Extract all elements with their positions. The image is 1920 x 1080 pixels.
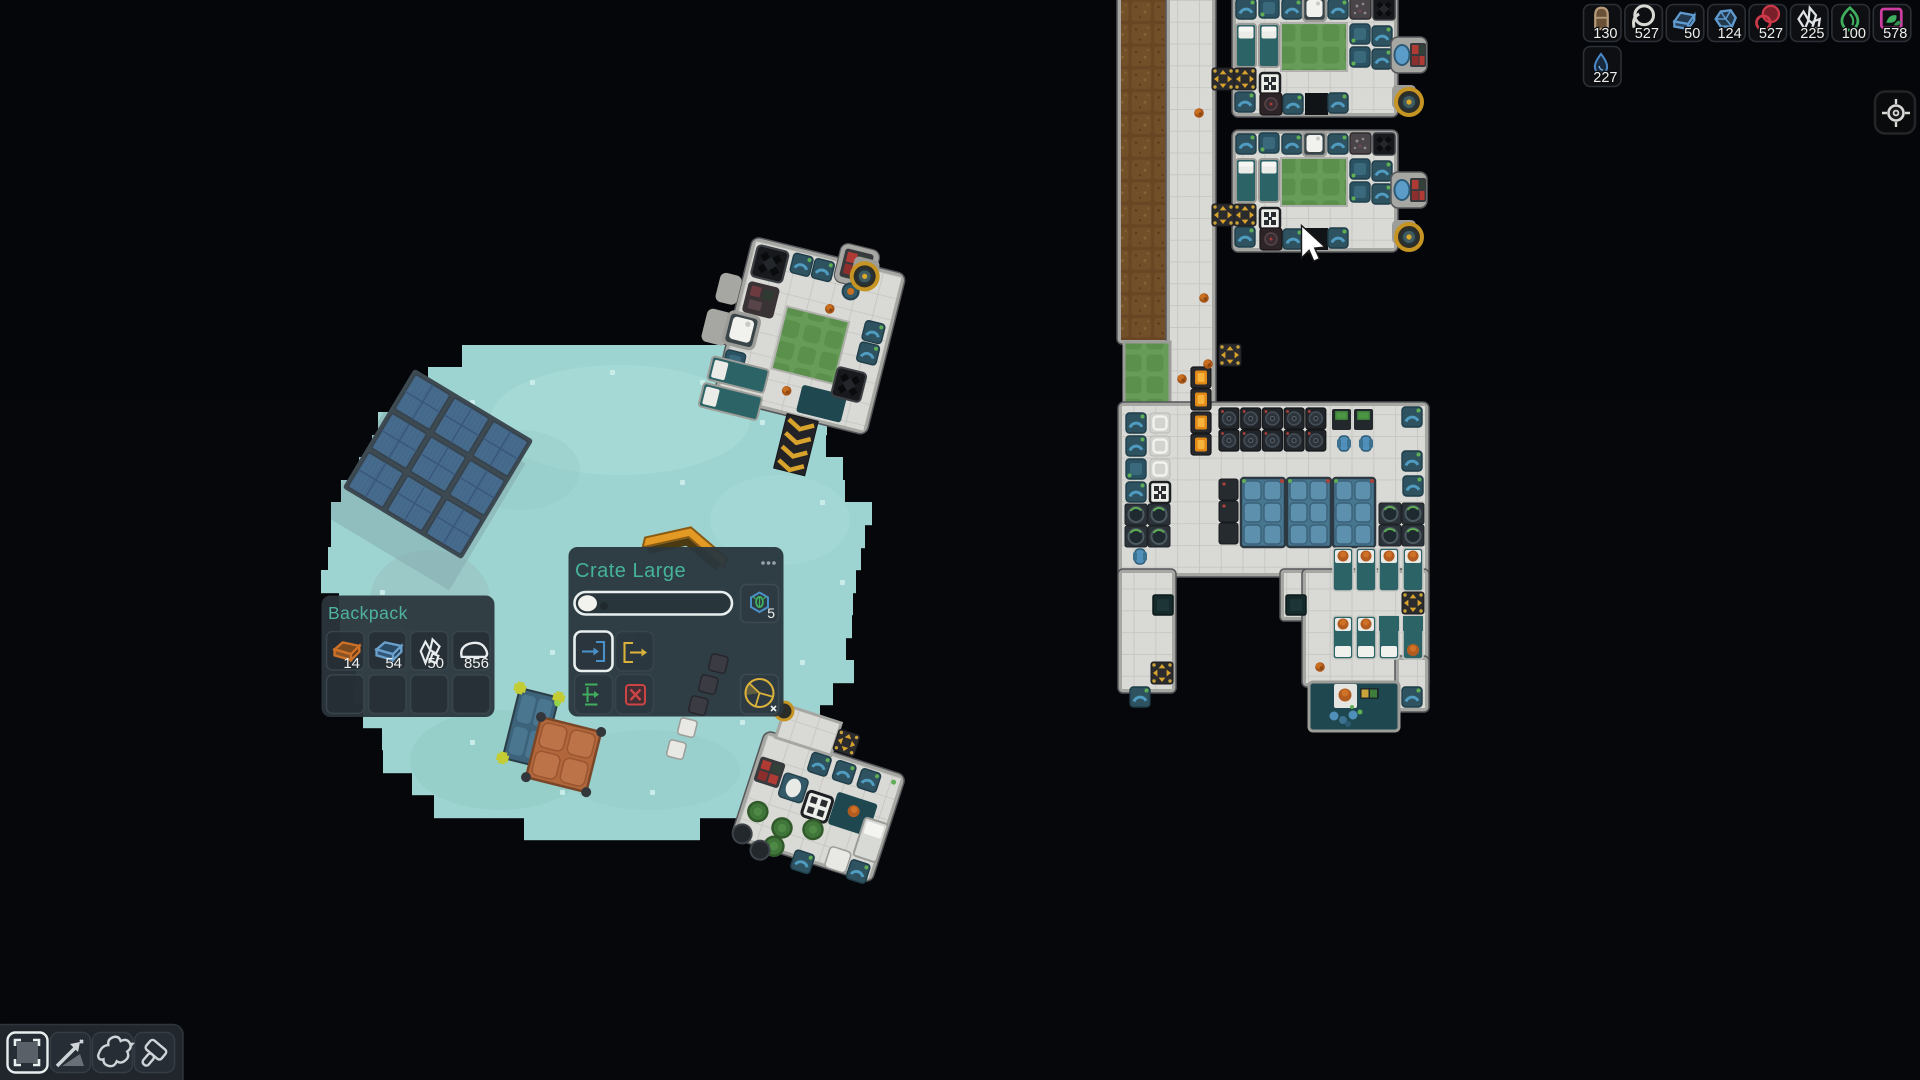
svg-text:578: 578 (1883, 26, 1907, 42)
svg-text:54: 54 (385, 655, 402, 672)
svg-text:527: 527 (1635, 26, 1659, 42)
svg-text:50: 50 (427, 655, 444, 672)
svg-text:50: 50 (1684, 26, 1700, 42)
svg-text:227: 227 (1593, 70, 1617, 86)
svg-text:130: 130 (1593, 26, 1617, 42)
svg-text:527: 527 (1759, 26, 1783, 42)
svg-text:124: 124 (1717, 26, 1741, 42)
svg-text:100: 100 (1842, 26, 1866, 42)
svg-text:5: 5 (767, 605, 775, 621)
svg-text:Crate Large: Crate Large (575, 560, 686, 582)
svg-text:Backpack: Backpack (328, 603, 408, 623)
svg-text:856: 856 (464, 655, 489, 672)
svg-text:225: 225 (1800, 26, 1824, 42)
svg-text:14: 14 (343, 655, 360, 672)
